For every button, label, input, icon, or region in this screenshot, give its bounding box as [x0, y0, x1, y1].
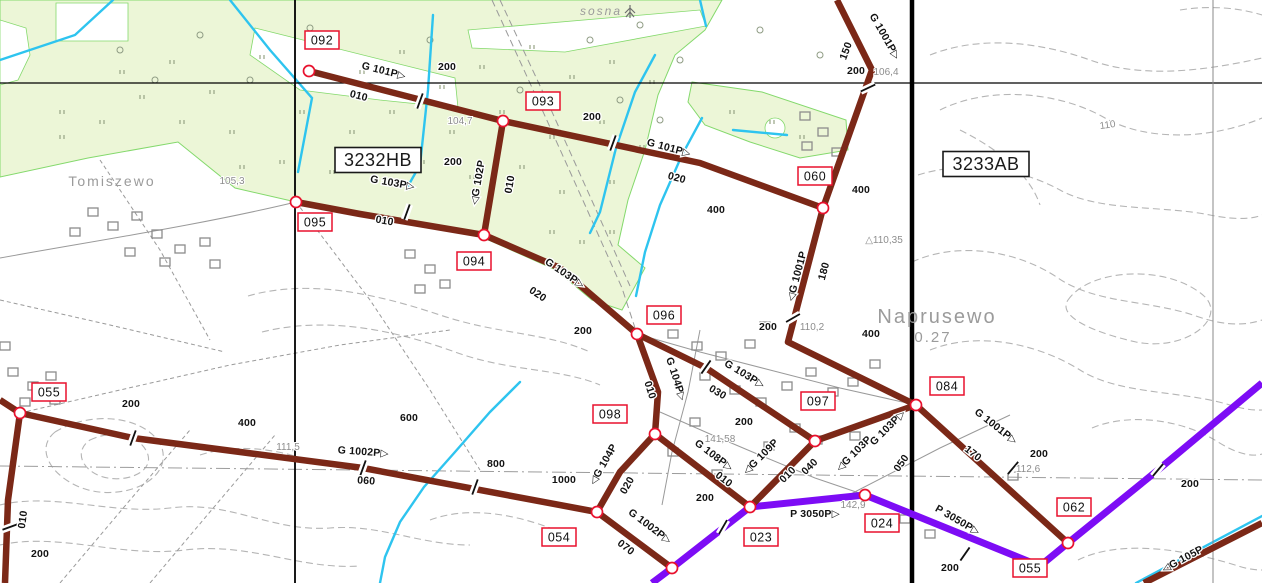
- node-label-text: 098: [599, 408, 621, 422]
- pipe-label: 800: [487, 458, 505, 470]
- pipe-label: 200: [444, 156, 462, 168]
- node-label-text: 060: [804, 170, 826, 184]
- pipe-label: 1000: [552, 474, 576, 486]
- pipe-label: 200: [438, 61, 456, 73]
- node-095[interactable]: [291, 197, 302, 208]
- pipe-label: 200: [1181, 478, 1199, 490]
- sheet-label-text: 3233AB: [952, 154, 1019, 174]
- node-label-024[interactable]: 024: [865, 514, 899, 532]
- node-062[interactable]: [1063, 538, 1074, 549]
- node-096[interactable]: [632, 329, 643, 340]
- forest-clearing: [56, 3, 128, 41]
- elevation-label: 106,4: [873, 67, 898, 78]
- node-label-text: 055: [1019, 562, 1041, 576]
- pipe-label: 200: [847, 65, 865, 77]
- node-label-062[interactable]: 062: [1057, 498, 1091, 516]
- elevation-label: 112,6: [1016, 464, 1041, 475]
- node-097[interactable]: [810, 436, 821, 447]
- node-label-092[interactable]: 092: [305, 31, 339, 49]
- place-name: sosna: [580, 4, 622, 18]
- pipe-label: 200: [574, 325, 592, 337]
- node-label-055[interactable]: 055: [1013, 559, 1047, 577]
- node-label-text: 095: [304, 216, 326, 230]
- node-060[interactable]: [818, 203, 829, 214]
- place-name: Naprusewo: [877, 306, 996, 328]
- node-label-text: 096: [653, 309, 675, 323]
- pipe-label: 200: [759, 321, 777, 333]
- node-label-text: 097: [807, 395, 829, 409]
- pipe-label: 200: [583, 111, 601, 123]
- elevation-label: △110,35: [865, 235, 903, 246]
- node-092[interactable]: [304, 66, 315, 77]
- node-023[interactable]: [745, 502, 756, 513]
- place-name: 0.27: [914, 329, 951, 346]
- node-label-023[interactable]: 023: [744, 528, 778, 546]
- pipe-label: 200: [735, 416, 753, 428]
- pipe-label: P 3050P▷: [790, 508, 840, 520]
- node-label-text: 024: [871, 517, 893, 531]
- elevation-label: 111,5: [276, 442, 300, 453]
- node-junction-south[interactable]: [667, 563, 678, 574]
- node-label-093[interactable]: 093: [526, 92, 560, 110]
- map-viewport: G 101P▷010200200G 101P▷020400G 1001P▷150…: [0, 0, 1262, 583]
- pipe-label: 400: [238, 417, 256, 429]
- node-label-text: 093: [532, 95, 554, 109]
- sheet-label-3232HB: 3232HB: [335, 148, 421, 173]
- elevation-label: 110: [1099, 119, 1117, 132]
- pipe-label: 200: [31, 548, 49, 560]
- sheet-label-3233AB: 3233AB: [943, 152, 1029, 177]
- pipe-label: 060: [357, 474, 376, 487]
- elevation-label: 110,2: [800, 322, 825, 333]
- pipe-label: 400: [862, 328, 880, 340]
- elevation-label: 104,7: [447, 116, 472, 127]
- node-098[interactable]: [650, 429, 661, 440]
- place-name: Tomiszewo: [68, 173, 155, 189]
- pipe-label: 200: [1030, 448, 1048, 460]
- node-label-text: 023: [750, 531, 772, 545]
- node-093[interactable]: [498, 116, 509, 127]
- pipe-label: 400: [707, 204, 725, 216]
- node-label-text: 062: [1063, 501, 1085, 515]
- utility-map-canvas: G 101P▷010200200G 101P▷020400G 1001P▷150…: [0, 0, 1262, 583]
- node-label-060[interactable]: 060: [798, 167, 832, 185]
- node-label-text: 084: [936, 380, 958, 394]
- node-label-095[interactable]: 095: [298, 213, 332, 231]
- node-094[interactable]: [479, 230, 490, 241]
- sheet-label-text: 3232HB: [344, 150, 412, 170]
- node-084[interactable]: [911, 400, 922, 411]
- elevation-label: 105,3: [219, 176, 244, 187]
- node-label-097[interactable]: 097: [801, 392, 835, 410]
- pipe-label: 400: [852, 184, 870, 196]
- node-055[interactable]: [15, 408, 26, 419]
- node-024[interactable]: [860, 490, 871, 501]
- elevation-label: 142,9: [840, 500, 865, 511]
- pipe-label: 010: [16, 510, 30, 530]
- node-label-094[interactable]: 094: [457, 252, 491, 270]
- node-label-text: 055: [38, 386, 60, 400]
- node-label-text: 054: [548, 531, 570, 545]
- node-label-054[interactable]: 054: [542, 528, 576, 546]
- node-label-text: 094: [463, 255, 485, 269]
- node-label-084[interactable]: 084: [930, 377, 964, 395]
- pipe-label: 200: [696, 492, 714, 504]
- node-label-text: 092: [311, 34, 333, 48]
- elevation-label: 141,58: [705, 434, 736, 445]
- node-label-055[interactable]: 055: [32, 383, 66, 401]
- node-label-098[interactable]: 098: [593, 405, 627, 423]
- pipe-label: 200: [941, 562, 959, 574]
- node-054[interactable]: [592, 507, 603, 518]
- pipe-label: 600: [400, 412, 418, 424]
- node-label-096[interactable]: 096: [647, 306, 681, 324]
- pipe-label: 200: [122, 398, 140, 410]
